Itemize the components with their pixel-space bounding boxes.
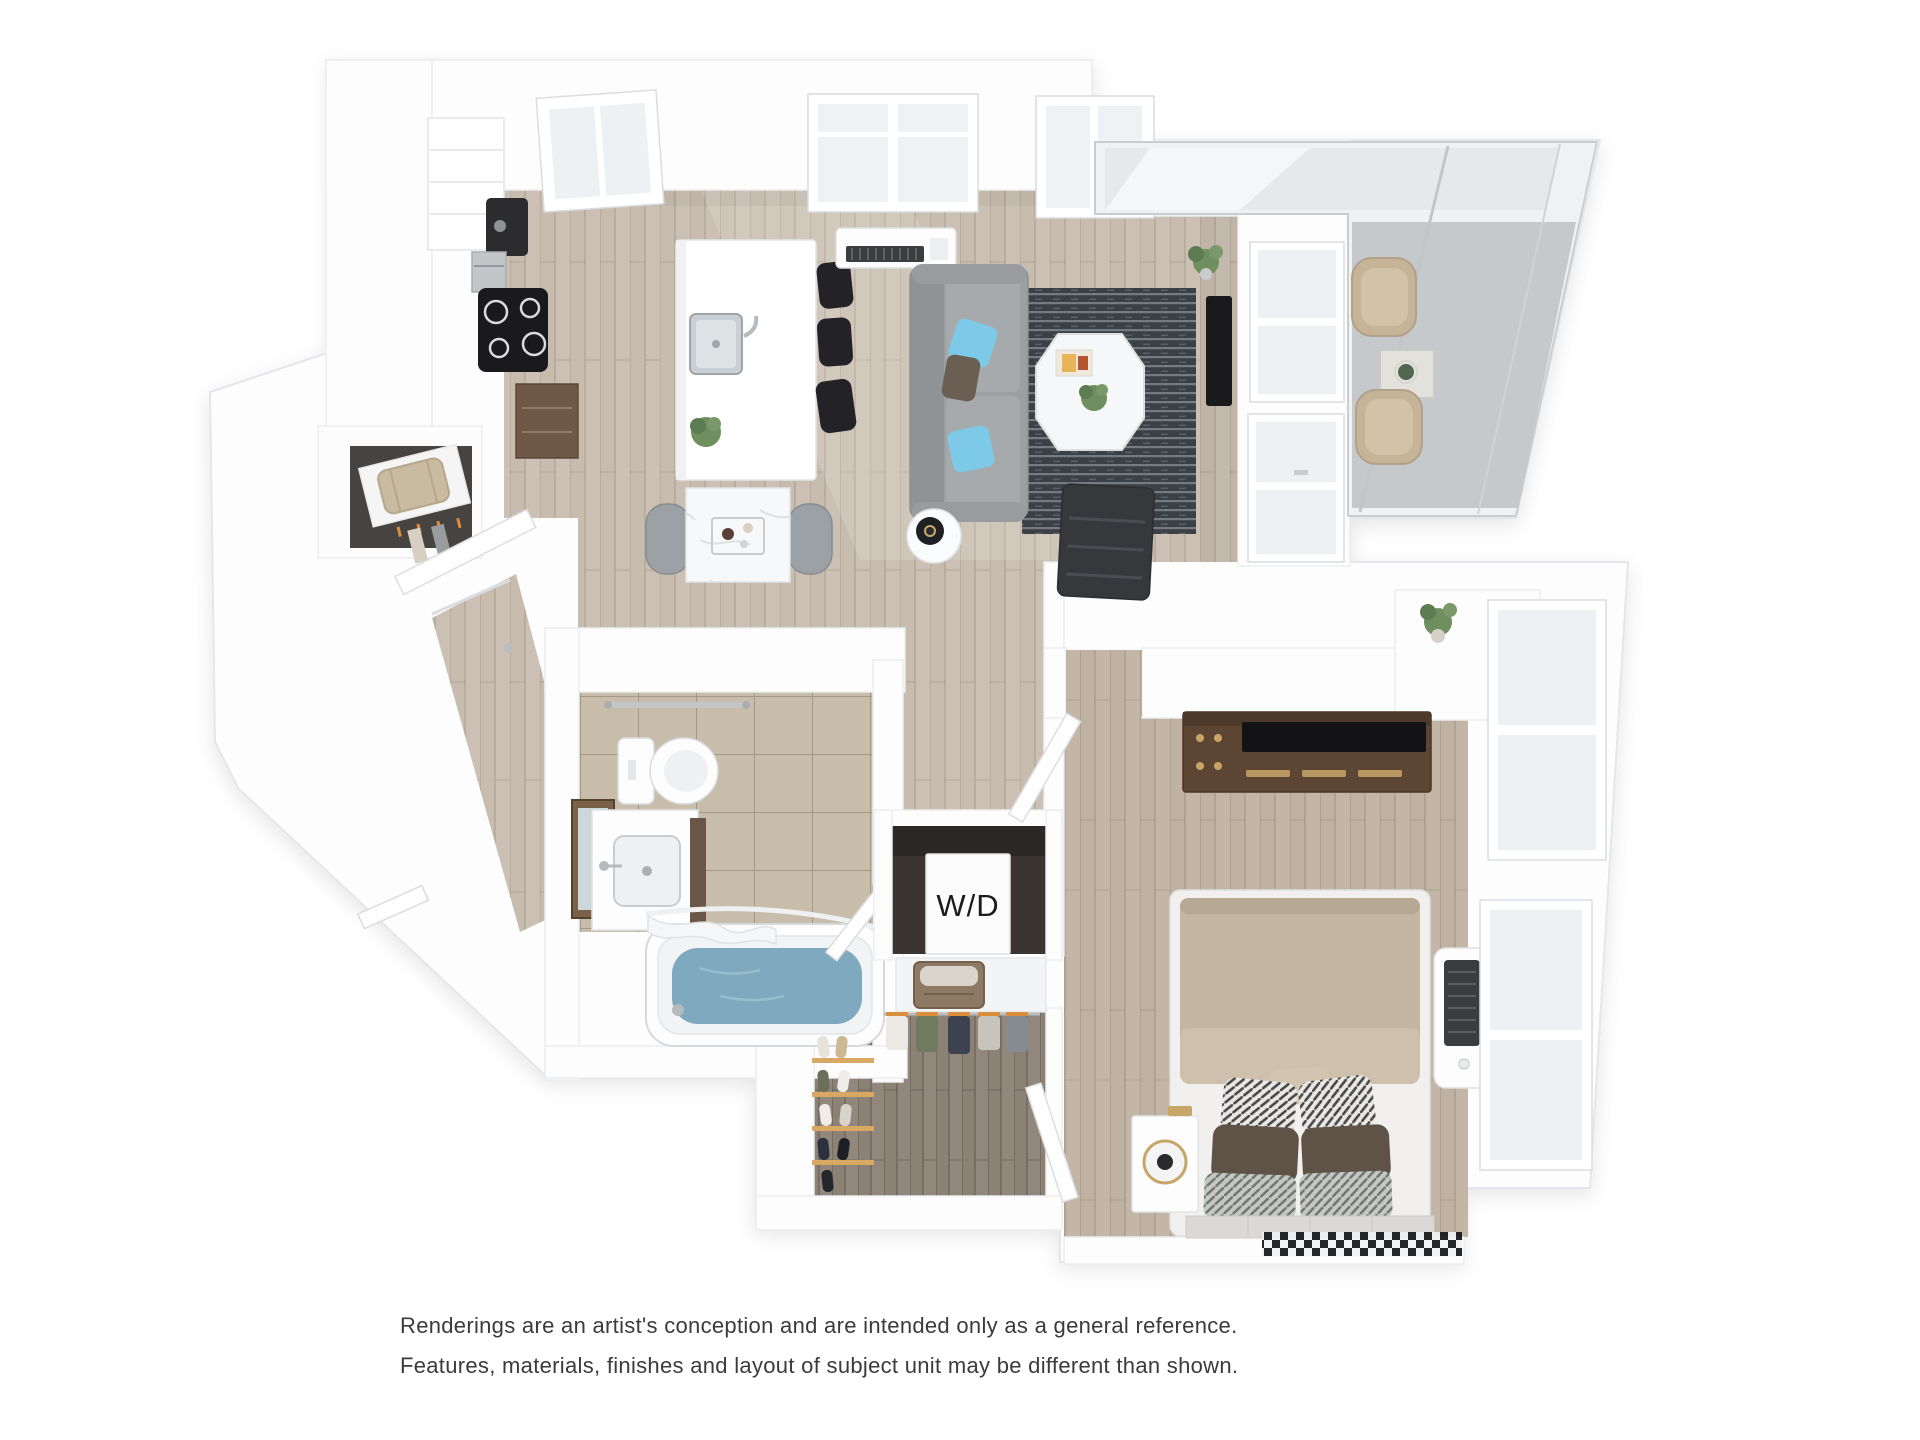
kitchen-lower-cabinets (516, 384, 578, 458)
folded-blanket (920, 966, 978, 986)
sofa-pillow-blue-bottom (946, 424, 996, 474)
bathtub-faucet (672, 1004, 684, 1016)
washer-dryer-closet: W/D (874, 810, 1062, 960)
floor-plan-page: W/D (0, 0, 1920, 1440)
bathtub-water (672, 948, 862, 1024)
cooktop (478, 288, 548, 372)
balcony-chair-2 (1356, 390, 1422, 464)
balcony-door (1248, 414, 1344, 562)
side-table-lamp (907, 509, 961, 563)
washer-dryer-label: W/D (936, 888, 999, 923)
balcony-plant (1398, 364, 1414, 380)
nightstand (1132, 1106, 1198, 1212)
balcony-chair-1 (1352, 258, 1416, 336)
bed-pillow-gray-left (1203, 1172, 1297, 1221)
bedroom-dresser (1183, 712, 1431, 792)
entry-door-knob (503, 643, 513, 653)
wall-bathroom-top (545, 628, 905, 692)
kitchen-skylight-window (536, 90, 664, 212)
accent-bench (1057, 484, 1155, 601)
bedroom-window-upper (1488, 600, 1606, 860)
linen-niche (896, 958, 1046, 1012)
bed-pillow-gray-right (1299, 1170, 1393, 1221)
wall-closet-bottom (756, 1196, 1062, 1230)
bedroom-rug (1262, 1232, 1462, 1256)
bed (1170, 890, 1434, 1238)
disclaimer-line-2: Features, materials, finishes and layout… (400, 1346, 1238, 1386)
bar-stool-2 (816, 317, 853, 367)
wall-bedroom-top-stub (1044, 648, 1066, 718)
disclaimer-text: Renderings are an artist's conception an… (400, 1306, 1238, 1386)
towel-bar (604, 701, 750, 709)
toilet (618, 738, 718, 804)
dining-chair-right (788, 504, 832, 574)
disclaimer-line-1: Renderings are an artist's conception an… (400, 1306, 1238, 1346)
wall-oven (472, 252, 506, 292)
wall-left-kitchen (326, 60, 432, 476)
coffee-table (1036, 334, 1144, 450)
bar-stool-3 (815, 378, 858, 435)
hanging-clothes (886, 1012, 1028, 1054)
balcony-door-handle (1294, 470, 1308, 475)
dining-chair-left (646, 504, 690, 574)
wall-tv-living (1206, 296, 1232, 406)
coffee-maker (486, 198, 528, 256)
dresser-tv (1242, 722, 1426, 752)
ptac-ac-living (836, 228, 956, 268)
dining-table (686, 488, 790, 582)
bedroom-doorway (1066, 650, 1142, 716)
bar-stools (815, 260, 858, 434)
kitchen-island (676, 240, 816, 480)
sofa (910, 264, 1028, 522)
bedroom-window-lower (1480, 900, 1592, 1170)
balcony-window-upper (1250, 242, 1344, 402)
floor-plan-rendering: W/D (0, 0, 1920, 1440)
coffee-table-magazine (1056, 350, 1092, 376)
living-room-window-1 (808, 94, 978, 212)
